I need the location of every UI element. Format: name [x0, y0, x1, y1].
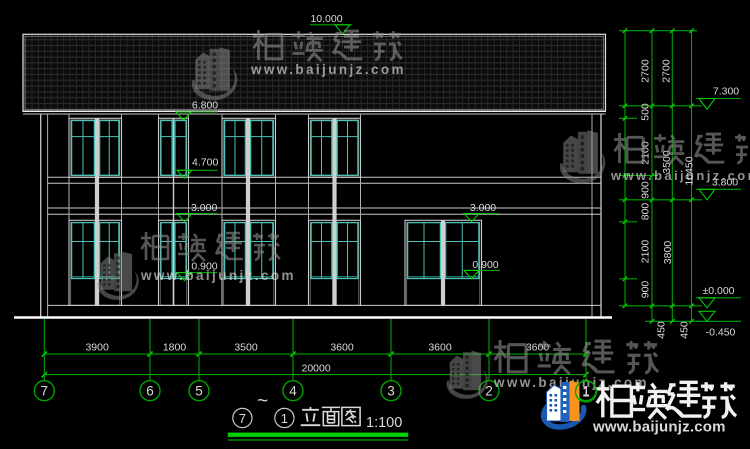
- svg-text:2700: 2700: [660, 59, 672, 83]
- svg-text:3: 3: [387, 384, 395, 399]
- svg-text:2100: 2100: [639, 240, 651, 264]
- svg-text:7.300: 7.300: [713, 86, 739, 98]
- svg-text:3600: 3600: [428, 341, 452, 353]
- svg-text:4.700: 4.700: [192, 157, 218, 169]
- svg-text:800: 800: [639, 203, 651, 221]
- svg-text:1800: 1800: [163, 341, 187, 353]
- svg-text:www.baijunjz.com: www.baijunjz.com: [250, 62, 406, 77]
- svg-text:450: 450: [678, 321, 690, 339]
- svg-text:450: 450: [655, 321, 667, 339]
- svg-text:6.800: 6.800: [192, 100, 218, 112]
- svg-text:3.000: 3.000: [191, 202, 217, 214]
- svg-text:1: 1: [281, 411, 288, 426]
- svg-text:www.baijunjz.com: www.baijunjz.com: [592, 419, 726, 436]
- svg-text:900: 900: [639, 181, 651, 199]
- svg-text:1:100: 1:100: [366, 415, 402, 431]
- svg-text:3500: 3500: [234, 341, 258, 353]
- svg-text:6: 6: [146, 384, 154, 399]
- svg-text:3600: 3600: [330, 341, 354, 353]
- svg-text:20000: 20000: [302, 362, 331, 374]
- svg-text:7: 7: [239, 411, 246, 426]
- svg-text:1: 1: [582, 385, 590, 400]
- svg-text:-0.450: -0.450: [706, 327, 736, 339]
- svg-text:~: ~: [257, 391, 268, 412]
- svg-text:4: 4: [289, 384, 297, 399]
- svg-text:5: 5: [195, 384, 203, 399]
- svg-text:7: 7: [41, 384, 49, 399]
- svg-text:±0.000: ±0.000: [702, 285, 734, 297]
- svg-text:2700: 2700: [639, 59, 651, 83]
- svg-text:3.000: 3.000: [470, 202, 496, 214]
- svg-text:3800: 3800: [662, 241, 674, 265]
- svg-text:www.baijunjz.com: www.baijunjz.com: [140, 268, 296, 283]
- svg-text:3900: 3900: [85, 341, 109, 353]
- svg-text:10.000: 10.000: [310, 13, 342, 25]
- svg-text:0.900: 0.900: [472, 259, 498, 271]
- svg-text:900: 900: [639, 281, 651, 299]
- svg-text:www.baijunjz.com: www.baijunjz.com: [610, 168, 750, 183]
- svg-text:500: 500: [639, 103, 651, 121]
